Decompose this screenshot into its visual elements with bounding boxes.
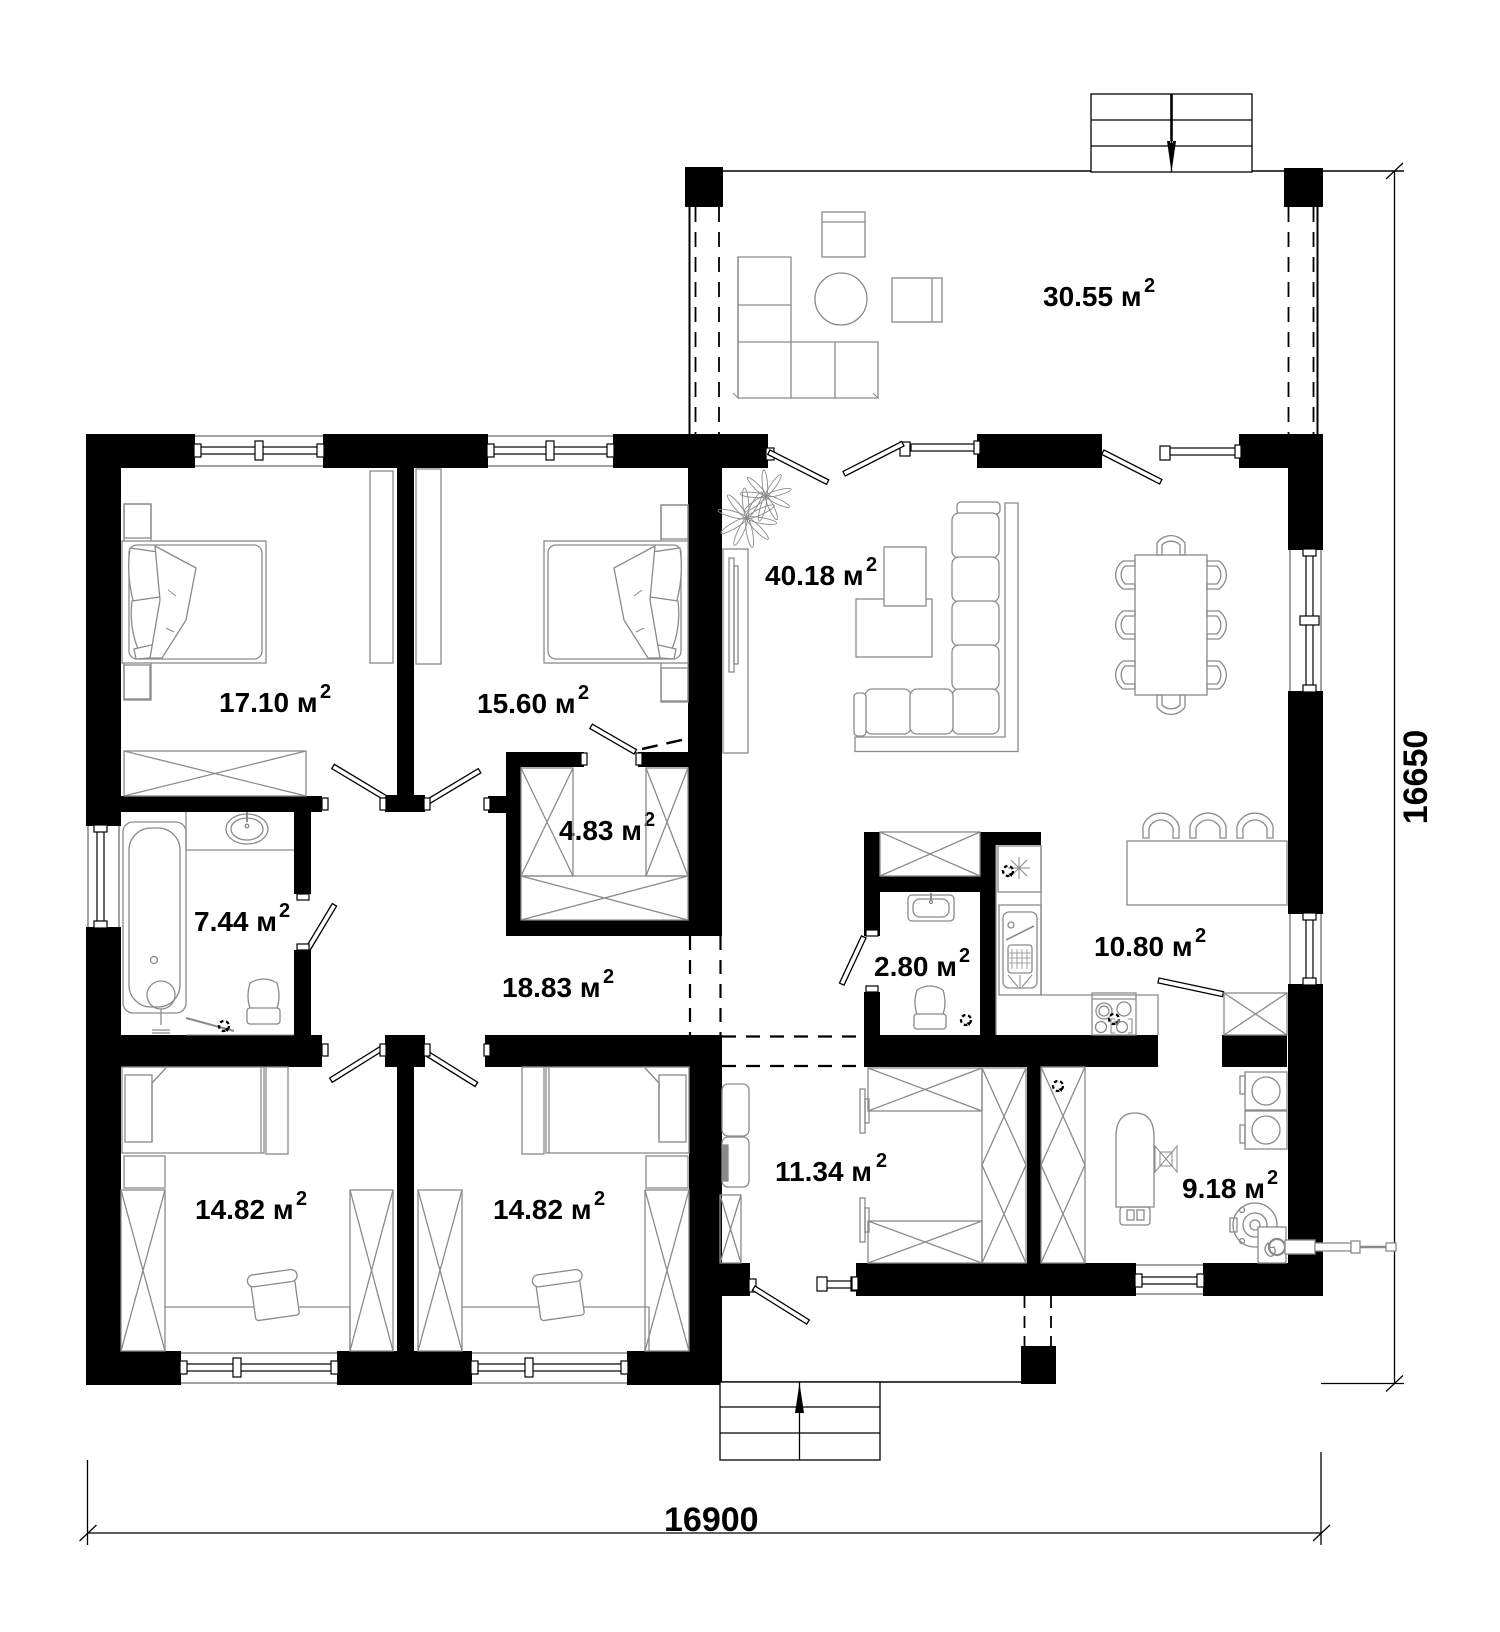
svg-text:14.82 м: 14.82 м [493, 1194, 592, 1225]
svg-text:14.82 м: 14.82 м [195, 1194, 294, 1225]
svg-text:10.80 м: 10.80 м [1094, 931, 1193, 962]
svg-text:15.60 м: 15.60 м [477, 688, 576, 719]
svg-text:18.83 м: 18.83 м [502, 972, 601, 1003]
svg-text:2.80 м: 2.80 м [874, 951, 957, 982]
svg-text:2: 2 [296, 1188, 307, 1210]
svg-text:40.18 м: 40.18 м [765, 560, 864, 591]
svg-text:2: 2 [578, 682, 589, 704]
svg-text:2: 2 [594, 1188, 605, 1210]
svg-text:2: 2 [1195, 925, 1206, 947]
svg-text:2: 2 [1267, 1167, 1278, 1189]
svg-text:7.44 м: 7.44 м [194, 906, 277, 937]
svg-text:30.55 м: 30.55 м [1043, 281, 1142, 312]
svg-text:4.83 м: 4.83 м [559, 815, 642, 846]
svg-text:2: 2 [279, 900, 290, 922]
svg-text:2: 2 [876, 1150, 887, 1172]
svg-text:11.34 м: 11.34 м [775, 1156, 872, 1187]
svg-text:16900: 16900 [664, 1501, 759, 1539]
svg-text:9.18 м: 9.18 м [1182, 1173, 1265, 1204]
svg-text:2: 2 [320, 681, 331, 703]
svg-text:17.10 м: 17.10 м [219, 687, 318, 718]
svg-text:2: 2 [603, 966, 614, 988]
svg-text:2: 2 [1144, 275, 1155, 297]
svg-text:2: 2 [959, 945, 970, 967]
svg-text:2: 2 [866, 554, 877, 576]
svg-text:16650: 16650 [1397, 730, 1435, 825]
